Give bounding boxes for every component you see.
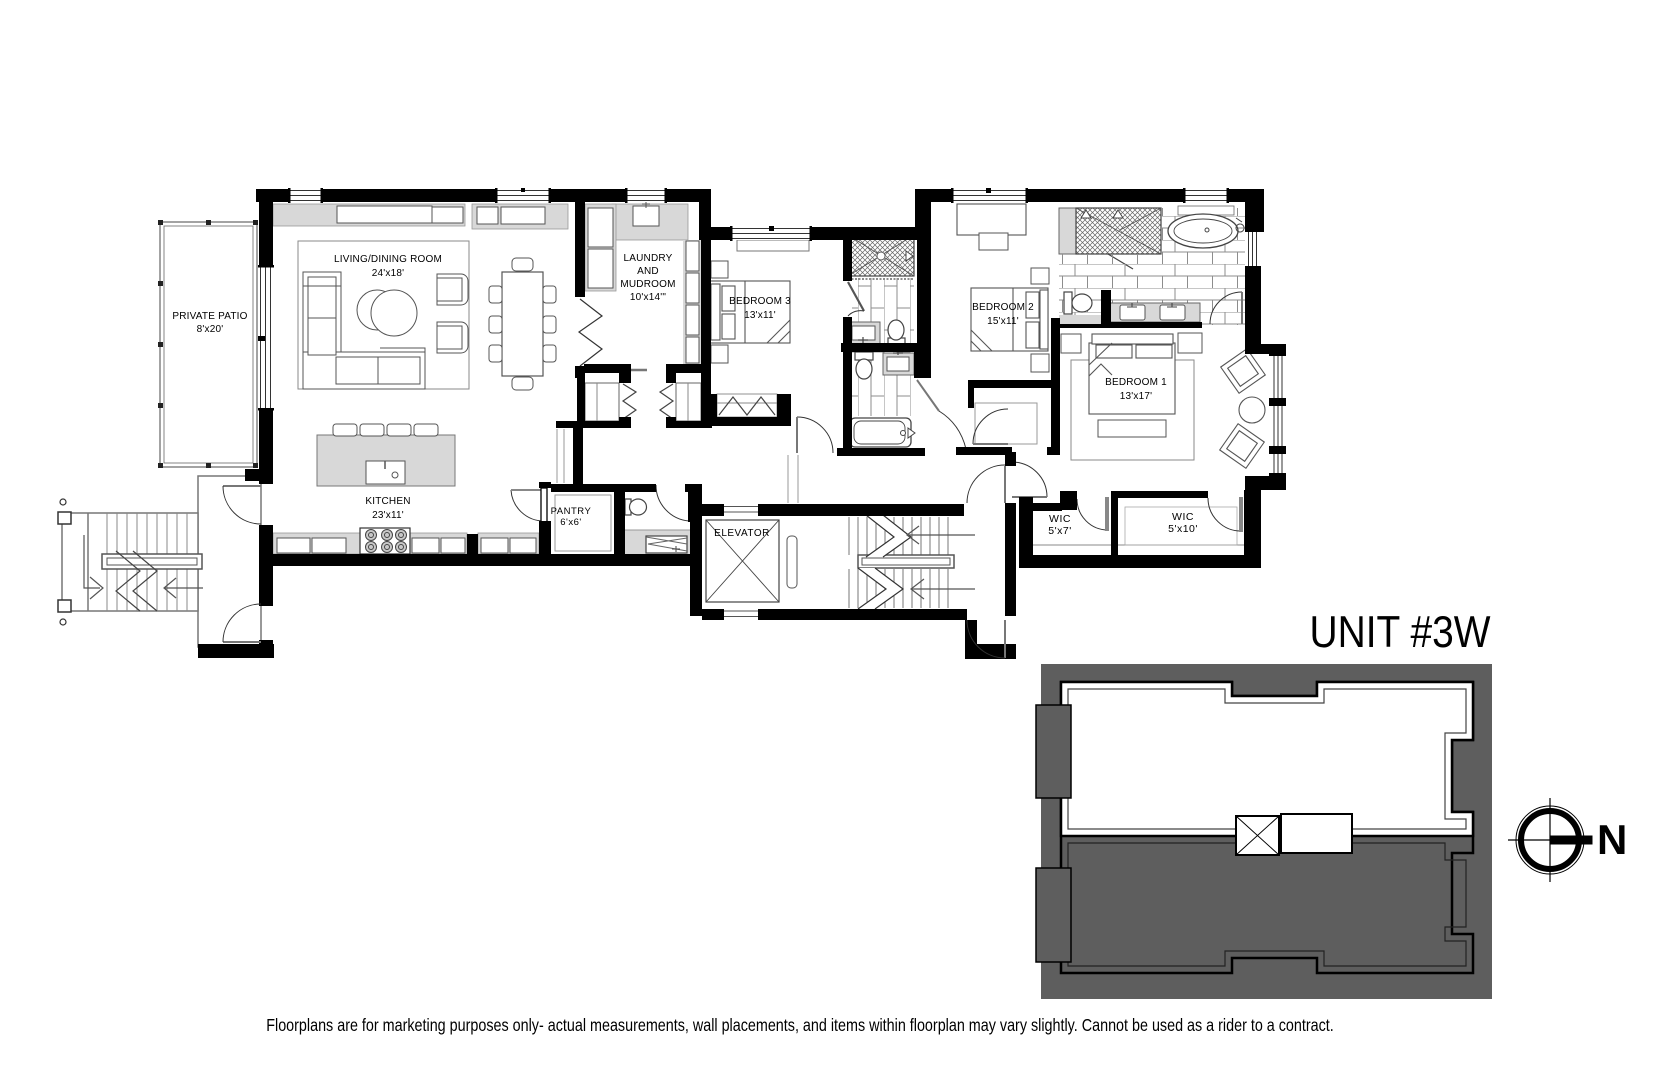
svg-text:BEDROOM 3: BEDROOM 3 bbox=[729, 296, 791, 307]
svg-text:BEDROOM 1: BEDROOM 1 bbox=[1105, 377, 1167, 388]
svg-text:Floorplans are for marketing p: Floorplans are for marketing purposes on… bbox=[266, 1017, 1334, 1036]
svg-text:N: N bbox=[1597, 816, 1627, 863]
svg-text:BEDROOM 2: BEDROOM 2 bbox=[972, 302, 1034, 313]
svg-text:PANTRY: PANTRY bbox=[551, 506, 592, 517]
svg-text:6'x6': 6'x6' bbox=[560, 517, 581, 528]
svg-text:23'x11': 23'x11' bbox=[372, 510, 404, 521]
svg-text:UNIT #3W: UNIT #3W bbox=[1310, 607, 1491, 657]
svg-text:WIC: WIC bbox=[1172, 511, 1194, 523]
svg-text:MUDROOM: MUDROOM bbox=[620, 279, 675, 290]
svg-text:13'x11': 13'x11' bbox=[744, 310, 776, 321]
svg-text:LIVING/DINING ROOM: LIVING/DINING ROOM bbox=[334, 254, 442, 265]
svg-text:ELEVATOR: ELEVATOR bbox=[714, 528, 770, 539]
svg-text:24'x18': 24'x18' bbox=[372, 268, 404, 279]
svg-text:LAUNDRY: LAUNDRY bbox=[623, 253, 672, 264]
svg-text:15'x11': 15'x11' bbox=[987, 316, 1019, 327]
svg-text:5'x10': 5'x10' bbox=[1168, 523, 1198, 535]
svg-text:13'x17': 13'x17' bbox=[1120, 391, 1152, 402]
svg-text:5'x7': 5'x7' bbox=[1048, 525, 1071, 537]
svg-text:WIC: WIC bbox=[1049, 513, 1071, 525]
svg-text:AND: AND bbox=[637, 266, 659, 277]
svg-text:10'x14'": 10'x14'" bbox=[630, 292, 666, 303]
svg-text:8'x20': 8'x20' bbox=[197, 324, 224, 335]
svg-text:KITCHEN: KITCHEN bbox=[365, 496, 410, 507]
svg-text:PRIVATE PATIO: PRIVATE PATIO bbox=[172, 311, 247, 322]
